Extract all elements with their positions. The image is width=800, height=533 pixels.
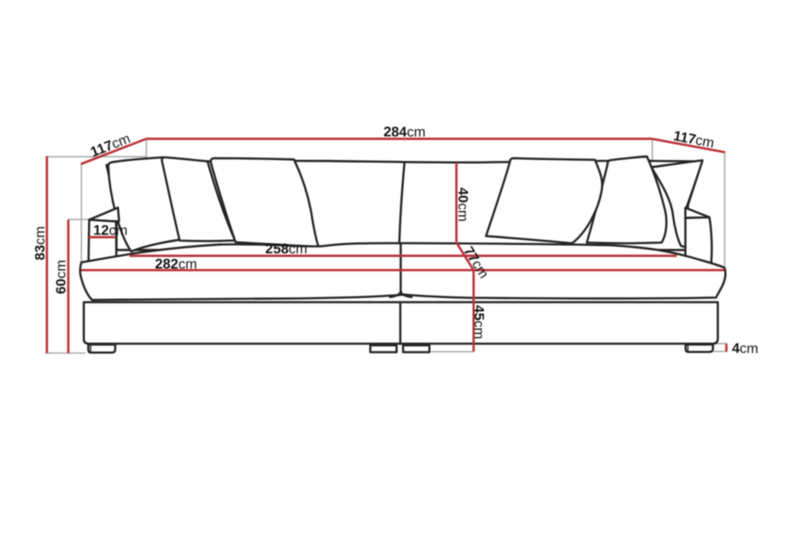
- svg-text:258cm: 258cm: [265, 240, 307, 256]
- svg-text:284cm: 284cm: [383, 123, 425, 139]
- svg-text:4cm: 4cm: [732, 340, 759, 356]
- svg-text:282cm: 282cm: [155, 256, 197, 272]
- svg-text:45cm: 45cm: [472, 305, 488, 339]
- svg-text:12cm: 12cm: [93, 222, 127, 238]
- svg-text:40cm: 40cm: [455, 187, 471, 221]
- svg-text:60cm: 60cm: [53, 260, 69, 294]
- svg-text:83cm: 83cm: [32, 226, 48, 260]
